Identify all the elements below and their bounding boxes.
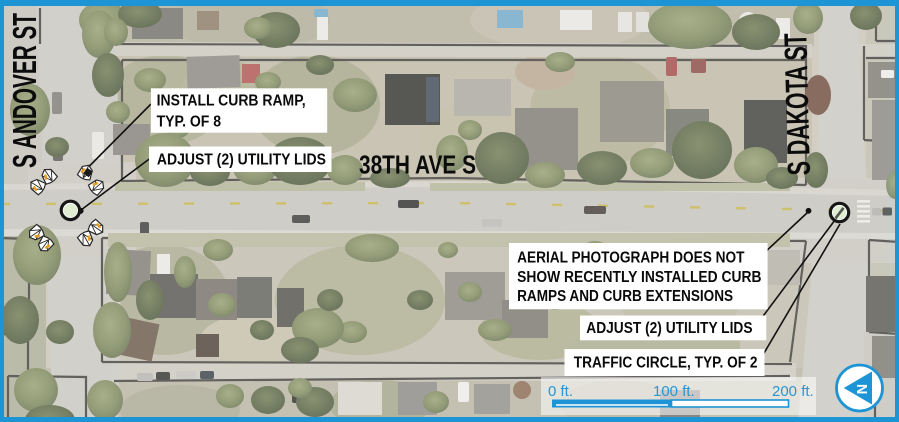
svg-text:TYP. OF 8: TYP. OF 8 bbox=[157, 114, 222, 131]
svg-text:200 ft.: 200 ft. bbox=[772, 383, 814, 400]
svg-text:TRAFFIC CIRCLE, TYP. OF 2: TRAFFIC CIRCLE, TYP. OF 2 bbox=[574, 355, 758, 372]
svg-text:ADJUST (2) UTILITY LIDS: ADJUST (2) UTILITY LIDS bbox=[157, 151, 326, 168]
svg-text:AERIAL PHOTOGRAPH DOES NOT: AERIAL PHOTOGRAPH DOES NOT bbox=[517, 250, 745, 267]
svg-text:38TH AVE S: 38TH AVE S bbox=[359, 150, 476, 180]
svg-text:N: N bbox=[853, 384, 869, 394]
svg-text:SHOW RECENTLY INSTALLED CURB: SHOW RECENTLY INSTALLED CURB bbox=[517, 269, 761, 286]
svg-text:100 ft.: 100 ft. bbox=[653, 383, 695, 400]
svg-text:S DAKOTA ST: S DAKOTA ST bbox=[777, 33, 817, 176]
svg-text:S ANDOVER ST: S ANDOVER ST bbox=[6, 13, 43, 168]
svg-text:INSTALL CURB RAMP,: INSTALL CURB RAMP, bbox=[157, 93, 306, 110]
svg-text:ADJUST (2) UTILITY LIDS: ADJUST (2) UTILITY LIDS bbox=[586, 320, 752, 337]
svg-text:0 ft.: 0 ft. bbox=[548, 383, 573, 400]
svg-text:RAMPS AND CURB EXTENSIONS: RAMPS AND CURB EXTENSIONS bbox=[517, 288, 733, 305]
